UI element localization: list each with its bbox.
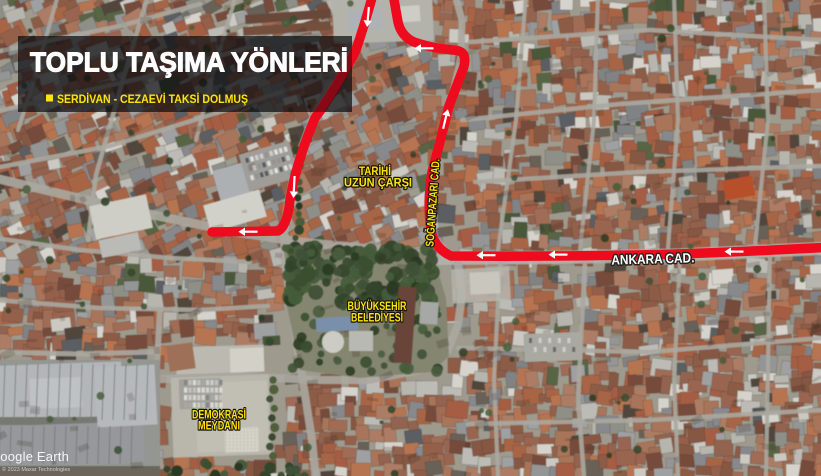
svg-text:© 2023 Maxar Technologies: © 2023 Maxar Technologies [2, 466, 70, 473]
svg-text:Google Earth: Google Earth [0, 449, 69, 464]
svg-text:BELEDİYESİ: BELEDİYESİ [351, 310, 403, 325]
svg-text:ANKARA CAD.: ANKARA CAD. [611, 250, 694, 267]
svg-text:UZUN ÇARŞI: UZUN ÇARŞI [344, 176, 412, 190]
svg-text:TOPLU TAŞIMA YÖNLERİ: TOPLU TAŞIMA YÖNLERİ [30, 47, 348, 78]
svg-text:SERDİVAN - CEZAEVİ TAKSİ DOLMU: SERDİVAN - CEZAEVİ TAKSİ DOLMUŞ [57, 91, 248, 106]
svg-text:MEYDANI: MEYDANI [198, 419, 240, 433]
